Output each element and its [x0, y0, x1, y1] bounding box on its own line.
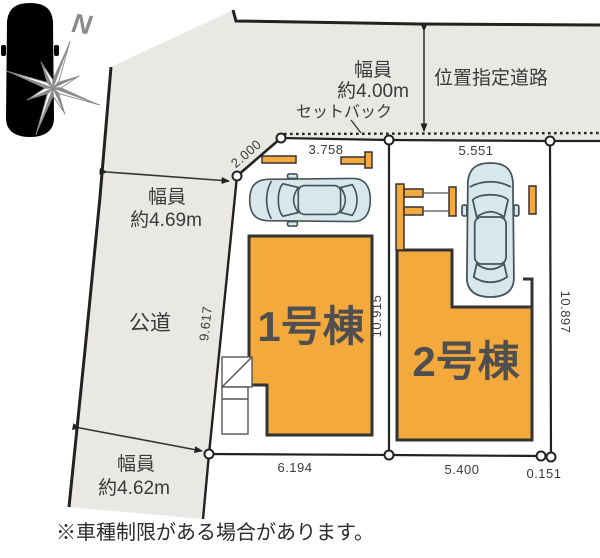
- dim-east-lot2: 10.897: [558, 291, 573, 334]
- dim-north-lot2: 5.551: [458, 143, 493, 158]
- building-1-label: 1号棟: [257, 303, 365, 350]
- lot-boundary-east: [550, 141, 551, 457]
- dim-south-sliver: 0.151: [526, 466, 561, 481]
- road-border-top: [233, 10, 600, 25]
- dim-south-lot2: 5.400: [444, 462, 479, 477]
- entry-structure-lot-2: [396, 184, 536, 250]
- setback-label: セットバック: [296, 103, 392, 121]
- site-plan: N 幅員 約4.00m 位置指定道路 セットバック 幅員 約4.69m 公道 幅…: [0, 0, 600, 558]
- left-road-width-label-2: 約4.69m: [130, 209, 202, 231]
- wall-stub-lot-2: [523, 279, 532, 307]
- footnote: ※車種制限がある場合があります。: [56, 521, 374, 544]
- top-road-width-label-2: 約4.00m: [337, 80, 409, 102]
- porch-steps-building-1: [222, 357, 252, 434]
- north-label: N: [70, 8, 94, 40]
- gate-lines-lot-2: [423, 193, 449, 211]
- left-road-width-label-1: 幅員: [148, 186, 186, 208]
- car-lot-2: [462, 163, 519, 297]
- dim-south-lot1: 6.194: [277, 460, 312, 475]
- dim-north-lot1: 3.758: [308, 142, 343, 157]
- top-road-name: 位置指定道路: [434, 67, 548, 89]
- building-2-label: 2号棟: [412, 338, 520, 385]
- bottom-road-width-label-2: 約4.62m: [98, 477, 170, 499]
- top-road-width-label-1: 幅員: [354, 59, 392, 81]
- dim-between-lots: 10.915: [369, 295, 384, 338]
- left-road-name: 公道: [129, 312, 171, 335]
- site-plan-drawing: N 幅員 約4.00m 位置指定道路 セットバック 幅員 約4.69m 公道 幅…: [0, 0, 600, 558]
- bottom-road-width-label-1: 幅員: [117, 453, 155, 475]
- car-lot-1: [250, 174, 371, 226]
- lot-boundary-south: [209, 454, 551, 457]
